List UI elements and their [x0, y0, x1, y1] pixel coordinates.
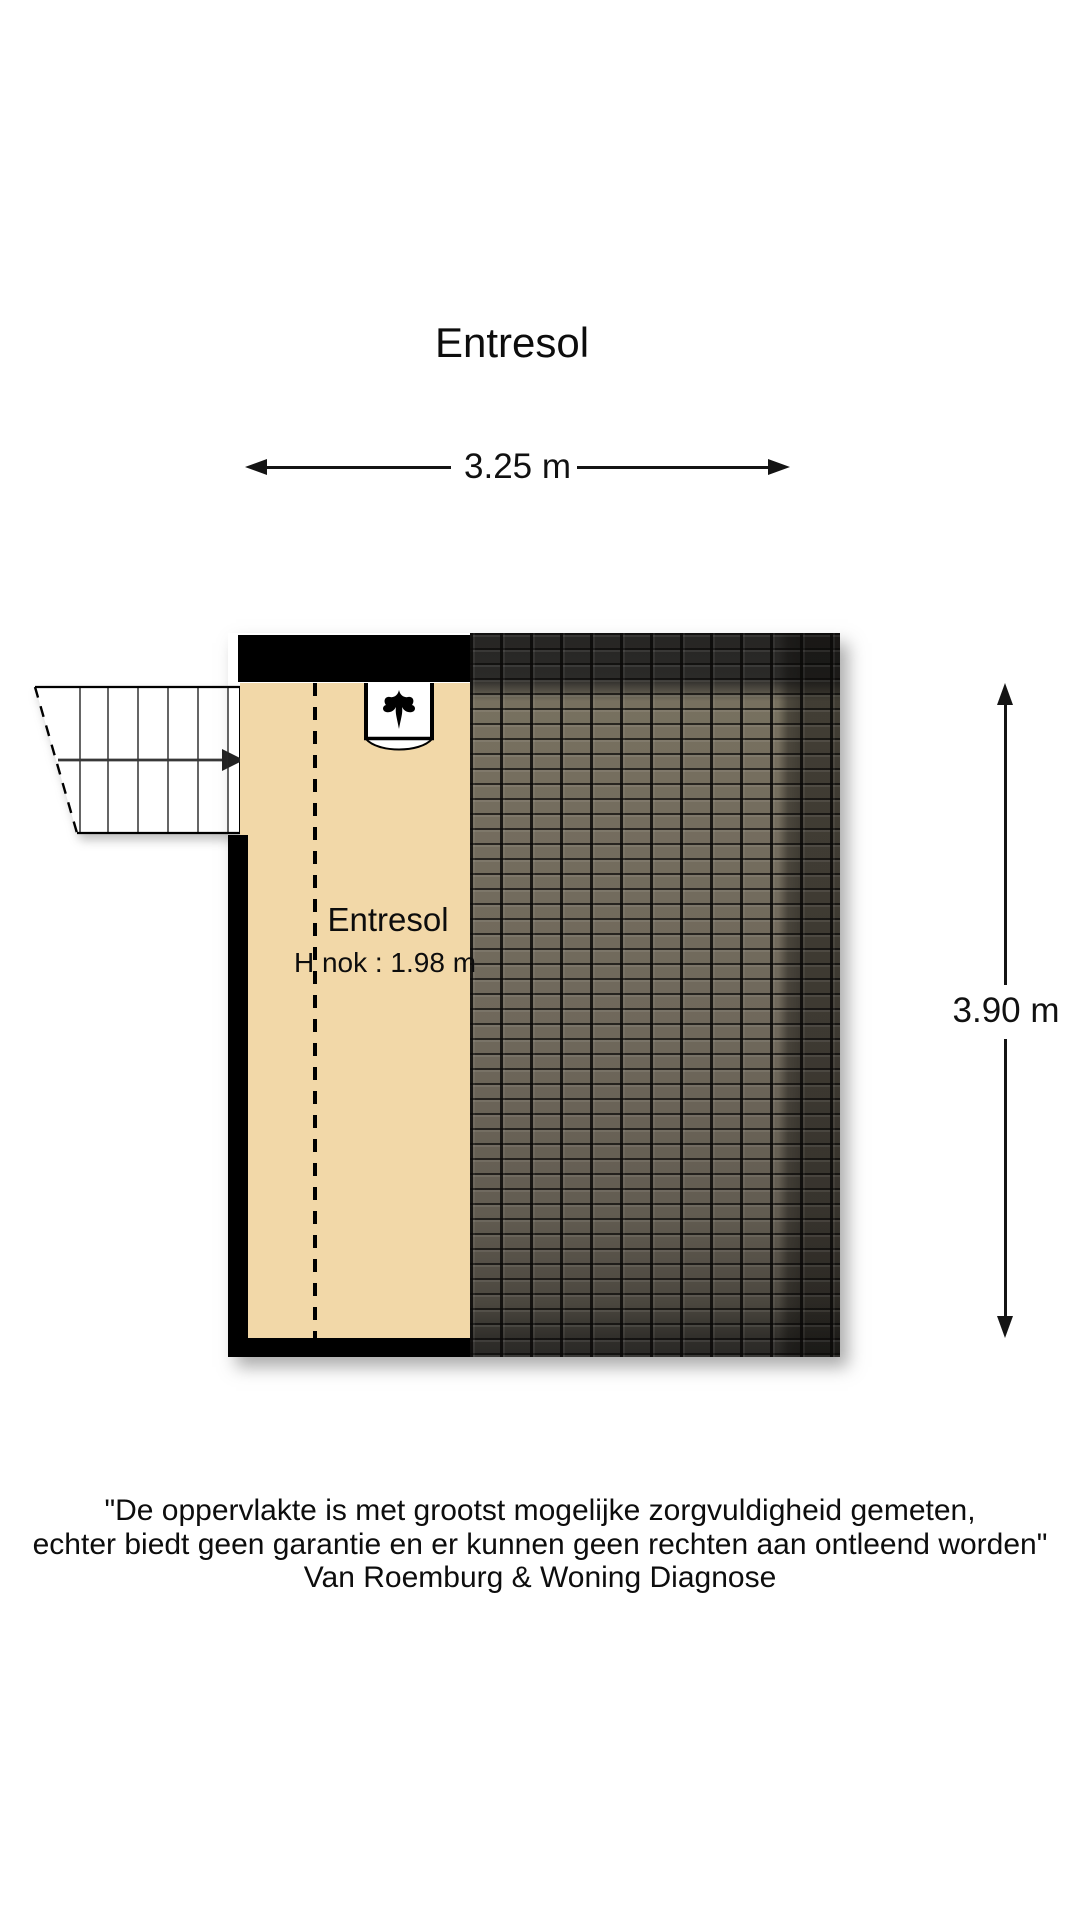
floorplan-page: Entresol 3.25 m 3.90 m — [0, 0, 1080, 1920]
roof-window — [362, 683, 436, 755]
arrow-right-icon — [768, 459, 790, 475]
height-dimension-label: 3.90 m — [946, 985, 1066, 1037]
wall-bottom — [228, 1338, 470, 1357]
disclaimer-line-2: echter biedt geen garantie en er kunnen … — [0, 1528, 1080, 1562]
room-label: Entresol — [327, 903, 448, 938]
disclaimer-line-1: "De oppervlakte is met grootst mogelijke… — [0, 1494, 1080, 1528]
height-dimension: 3.90 m — [946, 683, 1066, 1338]
roof-tiles-area — [470, 633, 840, 1357]
arrow-up-icon — [997, 683, 1013, 705]
staircase — [30, 680, 245, 838]
arrow-down-icon — [997, 1316, 1013, 1338]
disclaimer: "De oppervlakte is met grootst mogelijke… — [0, 1494, 1080, 1595]
wall-left — [228, 835, 248, 1357]
wall-top — [238, 635, 470, 682]
dimension-line — [1004, 703, 1007, 985]
dashed-ceiling-line — [313, 683, 317, 1338]
entresol-floor-area — [240, 683, 470, 1338]
dimension-line — [1004, 1039, 1007, 1316]
disclaimer-line-3: Van Roemburg & Woning Diagnose — [0, 1561, 1080, 1595]
width-dimension: 3.25 m — [245, 447, 790, 487]
dimension-line — [577, 466, 770, 469]
ridge-height-label: H nok : 1.98 m — [294, 948, 476, 979]
page-title: Entresol — [435, 320, 589, 366]
floor-plan: Entresol H nok : 1.98 m — [228, 633, 840, 1357]
